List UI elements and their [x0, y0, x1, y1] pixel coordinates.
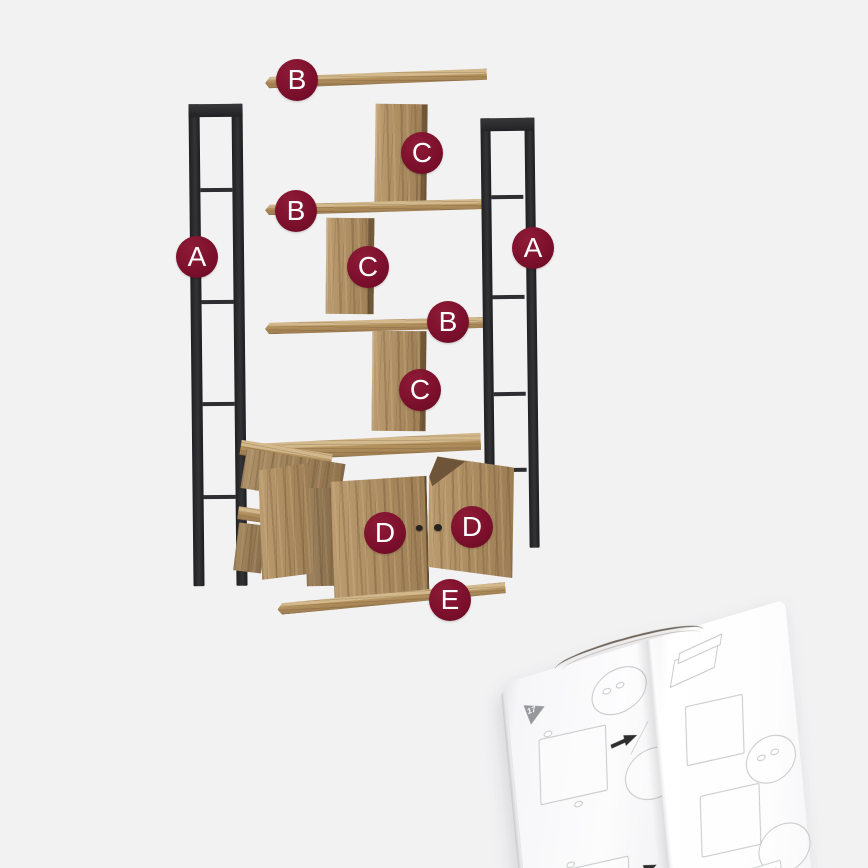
badge-c-upper-divider: C [401, 132, 443, 174]
sketch-screw-icon [574, 800, 583, 809]
badge-e-bottom-board: E [429, 579, 471, 621]
sketch-parts-list [714, 860, 784, 868]
door-knob-right [434, 524, 442, 531]
badge-b-middle-shelf: B [275, 190, 317, 232]
frame-crossbar [491, 195, 523, 199]
frame-crossbar [202, 300, 234, 304]
cabinet-side-panel-left [258, 463, 312, 580]
sketch-panel-4 [700, 783, 762, 858]
sketch-callout-5 [756, 816, 813, 868]
badge-d-left-door: D [364, 512, 406, 554]
frame-right-post [524, 118, 539, 548]
manual-step-number: 17 [527, 704, 537, 716]
frame-crossbar [494, 392, 526, 396]
badge-b-lower-shelf: B [427, 301, 469, 343]
sketch-arrow-2 [629, 859, 658, 868]
badge-b-top-shelf: B [276, 59, 318, 101]
sketch-panel-3 [685, 694, 745, 767]
sketch-callout-4 [744, 728, 798, 789]
frame-left-post [188, 104, 204, 586]
product-image-canvas: A A B B B C C C D D E 17 [0, 0, 868, 868]
instruction-manual: 17 [505, 600, 819, 868]
frame-top-bar [480, 118, 534, 132]
door-knob-left [416, 525, 423, 531]
badge-d-right-door: D [451, 506, 493, 548]
frame-crossbar [203, 402, 235, 406]
frame-top-bar [188, 104, 242, 118]
badge-a-right-frame: A [512, 227, 554, 269]
badge-a-left-frame: A [176, 236, 218, 278]
badge-c-lower-divider: C [399, 369, 441, 411]
frame-crossbar [200, 188, 232, 192]
frame-crossbar [493, 295, 525, 299]
badge-c-middle-divider: C [347, 246, 389, 288]
frame-crossbar [204, 495, 236, 499]
manual-step-marker: 17 [521, 698, 546, 727]
